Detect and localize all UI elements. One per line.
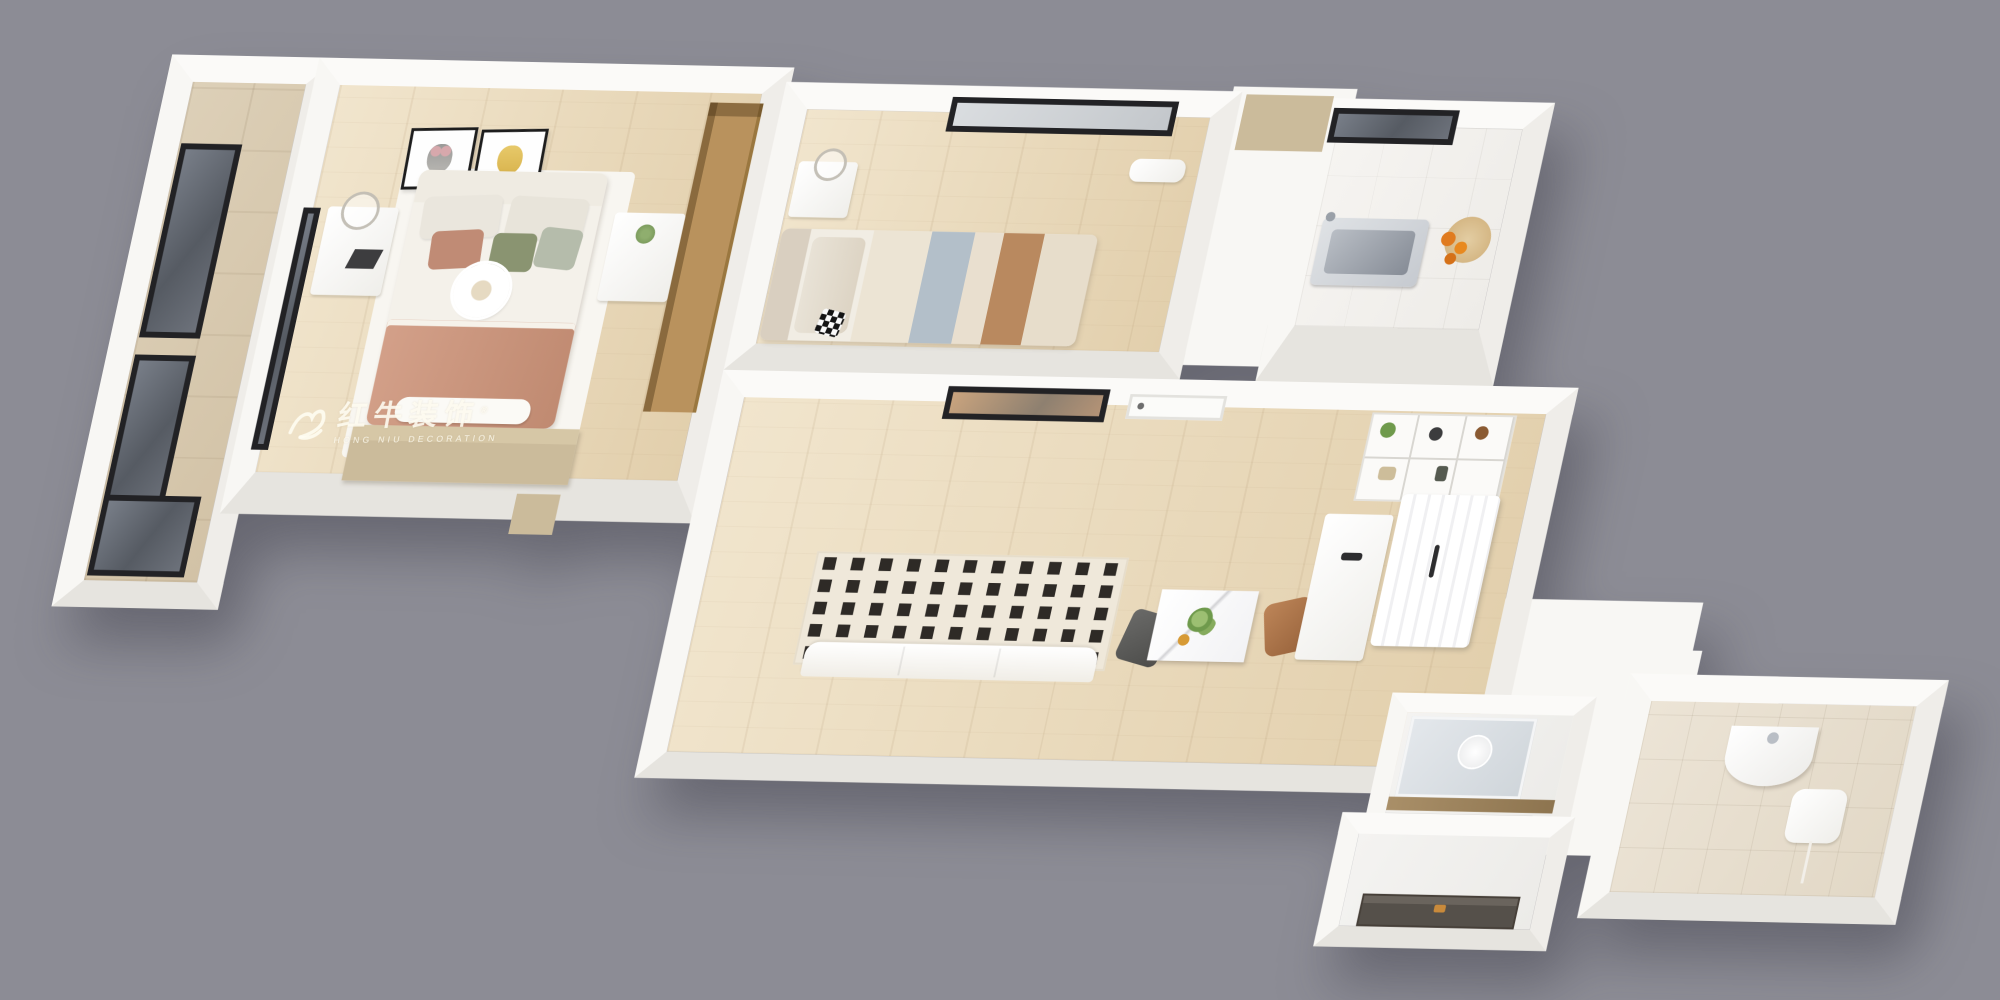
wall-vent [508,494,561,535]
room-second-bedroom [724,82,1243,380]
dining-table [1147,589,1259,662]
door-handle [1137,403,1145,410]
shelf-basket [1377,467,1397,481]
sofa [800,642,1100,683]
bedside-desk [788,161,859,218]
tan-wall-band [1234,94,1334,152]
bear-print-icon [495,145,525,174]
apartment-plan: 红牛装饰® HONG NIU DECORATION [0,25,2000,1000]
entrance-door-handle [1433,905,1446,913]
books [345,249,384,269]
koala-print-icon [424,144,454,173]
table-plant [1184,607,1219,636]
orange-3 [1443,253,1457,265]
window-glass [1334,114,1453,139]
bull-icon [283,405,332,444]
watermark-title: 红牛装饰® [335,401,504,432]
room-bathroom [1577,673,1949,925]
blanket-striped [850,230,1099,346]
desk-lamp [811,148,850,181]
living-window [942,386,1111,422]
water-heater [1783,789,1850,844]
balcony-window-lower [87,495,202,578]
room-entry [1313,812,1575,951]
entrance-door [1356,893,1521,929]
registered-mark: ® [479,405,495,416]
faucet [1325,212,1337,222]
shelf-vase [1428,427,1444,441]
pillow-pink [427,229,485,270]
decor-shelving [1353,412,1517,503]
sink-basin [1323,229,1416,275]
cabinet-handle [1340,553,1363,561]
floorplan-render: 红牛装饰® HONG NIU DECORATION [0,0,2000,1000]
ring-lamp [337,191,383,230]
window-glass [146,149,235,332]
shelf-figurine [1474,426,1490,440]
balcony-window-upper [139,143,242,338]
kitchen-window [1327,108,1460,145]
fridge-handle [1428,545,1440,578]
watermark: 红牛装饰® HONG NIU DECORATION [283,399,587,445]
shelf-plant [1379,422,1398,438]
flower-pillow [448,263,515,318]
window-glass [94,501,195,572]
window-blind [953,103,1173,131]
bed-second [759,228,1099,346]
window-glass [949,392,1104,416]
corner-basin [1719,726,1819,787]
bedroom2-window [946,97,1180,136]
interior-door [1125,394,1227,421]
kitchen-sink [1309,218,1430,287]
basin-faucet [1766,732,1780,744]
shelf-bottle [1434,466,1449,482]
air-conditioner [1127,159,1187,183]
table-fruit [1177,634,1191,646]
wood-threshold [1386,797,1555,814]
heater-cord [1800,841,1812,883]
plant [634,224,657,244]
